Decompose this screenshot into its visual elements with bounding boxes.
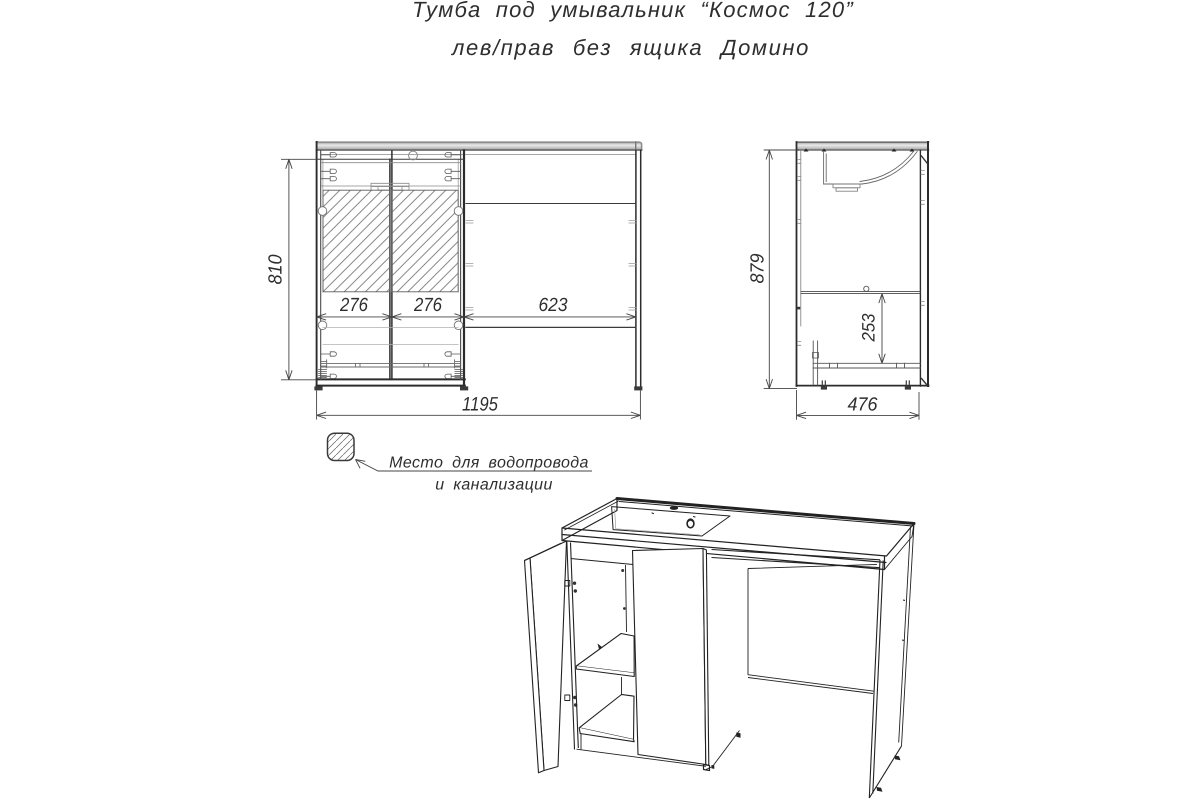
svg-text:1195: 1195 bbox=[462, 394, 498, 416]
svg-text:Тумба под умывальник “Космос 1: Тумба под умывальник “Космос 120” bbox=[412, 0, 854, 22]
svg-text:879: 879 bbox=[748, 253, 769, 283]
svg-text:276: 276 bbox=[339, 295, 368, 316]
svg-text:и канализации: и канализации bbox=[435, 477, 553, 494]
svg-text:476: 476 bbox=[848, 395, 878, 416]
svg-text:810: 810 bbox=[266, 254, 287, 284]
svg-text:лев/прав без ящика Домино: лев/прав без ящика Домино bbox=[450, 35, 810, 60]
svg-text:253: 253 bbox=[859, 314, 879, 343]
svg-text:276: 276 bbox=[413, 295, 442, 316]
svg-text:Место для водопровода: Место для водопровода bbox=[389, 455, 589, 472]
svg-text:623: 623 bbox=[539, 295, 568, 316]
